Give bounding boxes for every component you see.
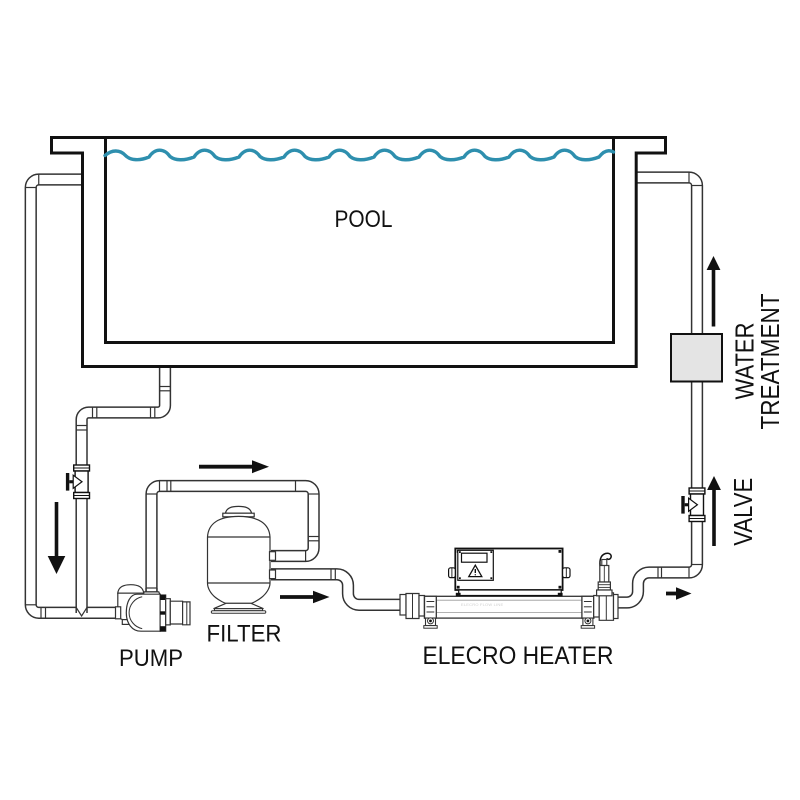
svg-text:ELECRO HEATER: ELECRO HEATER: [423, 642, 614, 670]
svg-text:POOL: POOL: [335, 206, 393, 233]
svg-text:VALVE: VALVE: [728, 478, 758, 546]
svg-text:PUMP: PUMP: [119, 645, 183, 672]
svg-text:FILTER: FILTER: [207, 621, 282, 648]
svg-text:TREATMENT: TREATMENT: [755, 293, 785, 429]
svg-text:ELECRO FLOW LINE: ELECRO FLOW LINE: [461, 602, 503, 607]
